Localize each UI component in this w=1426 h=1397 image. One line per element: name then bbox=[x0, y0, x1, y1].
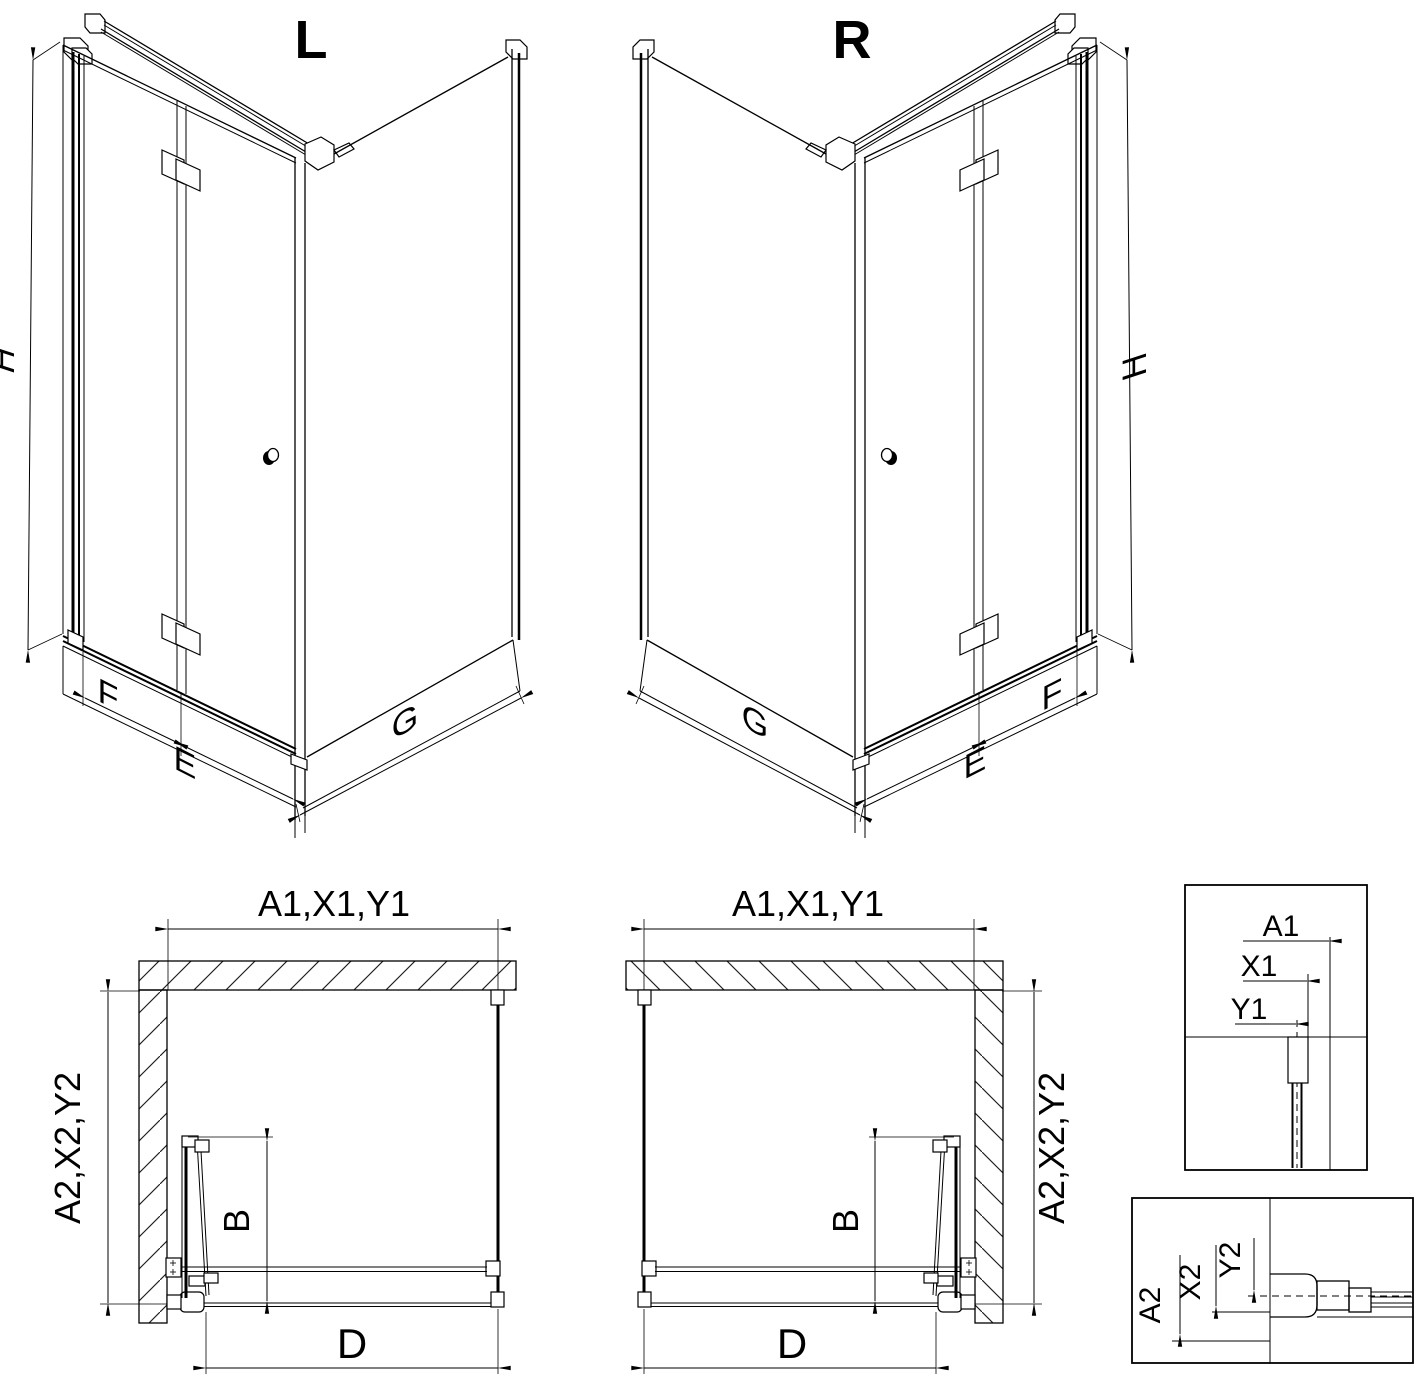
detail-box-a1: A1 X1 Y1 bbox=[1185, 885, 1367, 1170]
variant-left-label: L bbox=[295, 10, 328, 70]
plan-door-dim-label: B bbox=[216, 1209, 257, 1233]
detail-y1-label: Y1 bbox=[1231, 993, 1268, 1026]
variant-right-label: R bbox=[833, 10, 872, 70]
detail-x1-label: X1 bbox=[1241, 950, 1278, 983]
detail-a1-label: A1 bbox=[1263, 910, 1300, 943]
plan-width-dim-label: D bbox=[777, 1320, 807, 1367]
plan-top-dim-label: A1,X1,Y1 bbox=[258, 883, 410, 924]
side-dim-label: G bbox=[742, 695, 768, 748]
height-dim-label: H bbox=[1116, 348, 1154, 385]
detail-box-a2: A2 X2 Y2 bbox=[1132, 1198, 1413, 1363]
plan-width-dim-label: D bbox=[337, 1320, 367, 1367]
plan-left-view: A1,X1,Y1 A2,X2,Y2 B D bbox=[47, 883, 516, 1374]
height-dim-label: H bbox=[0, 341, 22, 378]
shower-enclosure-diagram: L H F E G R H F E G A1,X1,Y1 A2,X2,Y2 B … bbox=[0, 0, 1426, 1397]
detail-a2-label: A2 bbox=[1134, 1287, 1167, 1324]
fixed-panel-dim-label: F bbox=[98, 670, 119, 719]
iso-right-view: R H F E G bbox=[633, 10, 1154, 838]
iso-left-view: L H F E G bbox=[0, 10, 527, 838]
plan-top-dim-label: A1,X1,Y1 bbox=[732, 883, 884, 924]
plan-right-view: A1,X1,Y1 A2,X2,Y2 B D bbox=[626, 883, 1072, 1374]
fixed-panel-dim-label: F bbox=[1042, 670, 1063, 719]
plan-door-dim-label: B bbox=[825, 1209, 866, 1233]
door-dim-label: E bbox=[174, 737, 197, 787]
detail-y2-label: Y2 bbox=[1214, 1242, 1247, 1279]
plan-side-dim-label: A2,X2,Y2 bbox=[47, 1072, 88, 1224]
plan-side-dim-label: A2,X2,Y2 bbox=[1031, 1072, 1072, 1224]
side-dim-label: G bbox=[392, 695, 418, 748]
technical-drawing-page: L H F E G R H F E G A1,X1,Y1 A2,X2,Y2 B … bbox=[0, 0, 1426, 1397]
door-dim-label: E bbox=[964, 737, 987, 787]
detail-x2-label: X2 bbox=[1174, 1264, 1207, 1301]
